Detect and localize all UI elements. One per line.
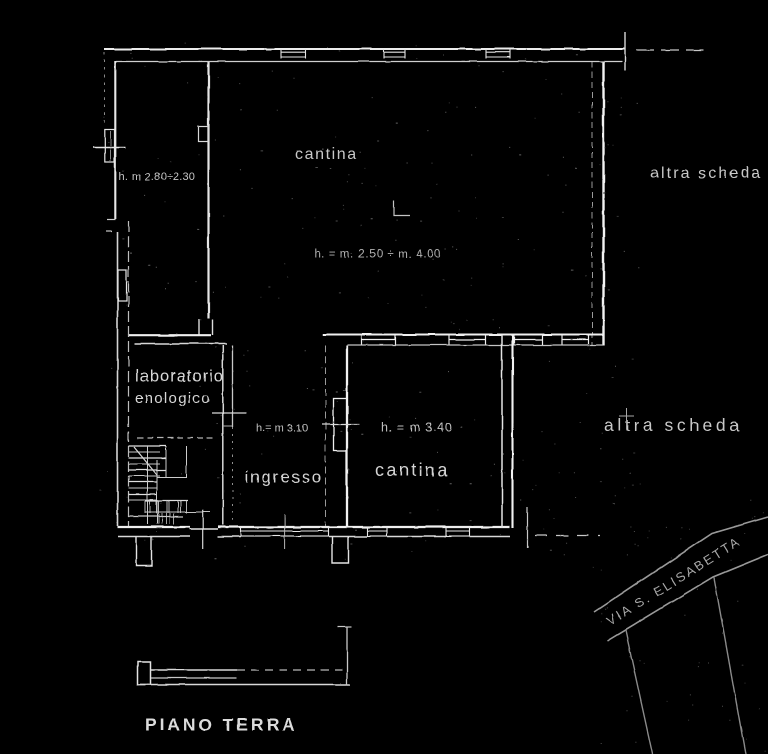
svg-text:h. = m 3.40: h. = m 3.40 xyxy=(381,421,453,435)
svg-text:h. = m. 2.50 ÷ m. 4.00: h. = m. 2.50 ÷ m. 4.00 xyxy=(314,249,442,261)
svg-text:altra scheda: altra scheda xyxy=(604,415,743,435)
svg-text:enologico: enologico xyxy=(135,390,211,407)
svg-text:cantina: cantina xyxy=(295,146,358,163)
svg-text:h. m 2.80÷2.30: h. m 2.80÷2.30 xyxy=(119,171,195,183)
svg-text:h.= m 3.10: h.= m 3.10 xyxy=(256,423,308,435)
svg-text:cantina: cantina xyxy=(375,460,450,480)
svg-text:PIANO TERRA: PIANO TERRA xyxy=(145,715,297,735)
svg-text:altra scheda: altra scheda xyxy=(650,165,762,182)
svg-text:laboratorio: laboratorio xyxy=(135,368,224,386)
svg-text:ingresso: ingresso xyxy=(245,468,323,487)
